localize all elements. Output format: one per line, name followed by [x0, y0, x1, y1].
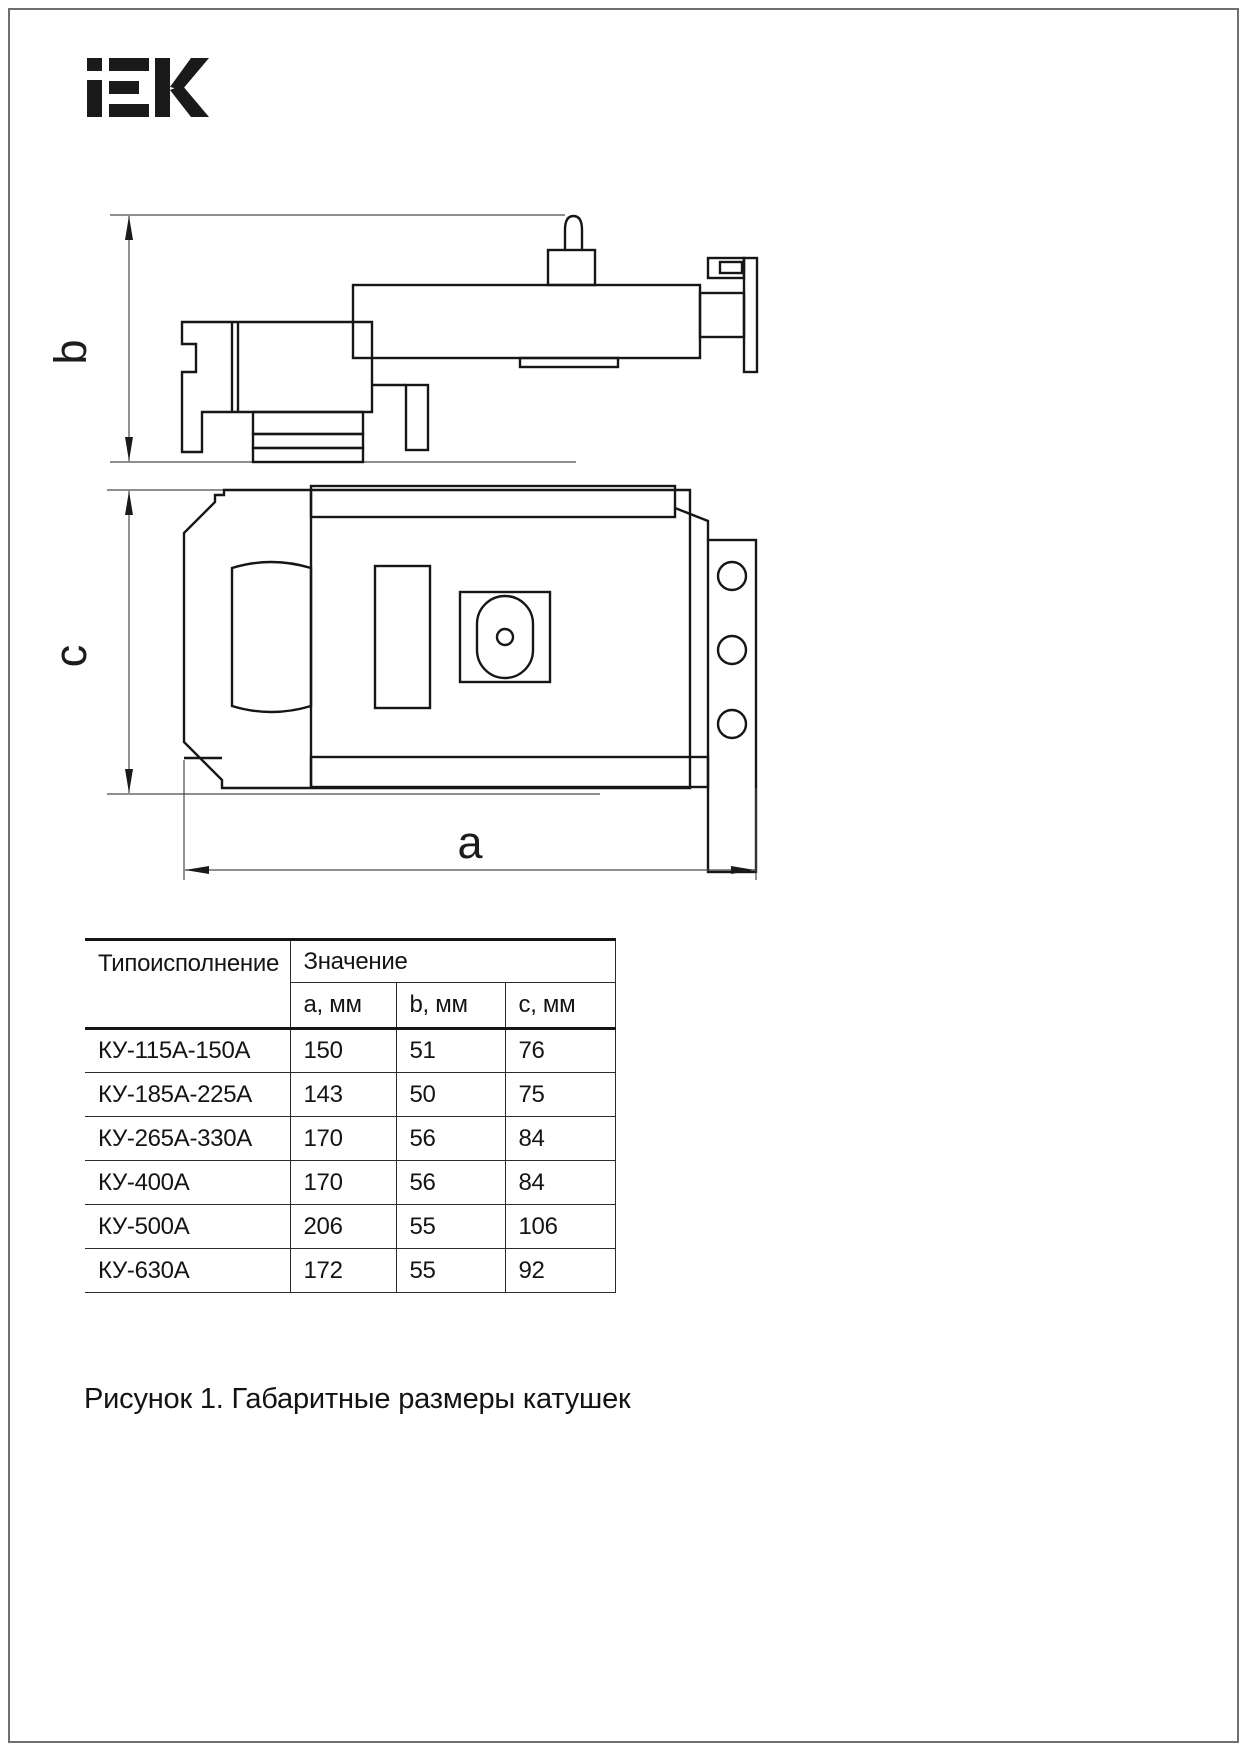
- pin: [565, 216, 582, 250]
- table-row: КУ-185А-225А 143 50 75: [85, 1073, 615, 1117]
- terminal-hole: [718, 562, 746, 590]
- dim-label-a: a: [457, 817, 483, 868]
- core-plate: [253, 412, 363, 434]
- arrow-up-icon: [125, 491, 133, 515]
- cell-b: 56: [396, 1117, 505, 1161]
- rail-joint: [675, 508, 708, 540]
- dim-label-c: c: [45, 645, 96, 668]
- table-row: КУ-115А-150А 150 51 76: [85, 1029, 615, 1073]
- cell-a: 206: [290, 1205, 396, 1249]
- cell-c: 76: [505, 1029, 615, 1073]
- table-row: КУ-500А 206 55 106: [85, 1205, 615, 1249]
- pin-base: [548, 250, 595, 285]
- key-square: [460, 592, 550, 682]
- table-row: КУ-400А 170 56 84: [85, 1161, 615, 1205]
- dimension-drawings: b c: [0, 0, 1247, 1751]
- subheader-b: b, мм: [396, 983, 505, 1029]
- side-body: [353, 285, 700, 358]
- key-hole: [497, 629, 513, 645]
- header-value: Значение: [290, 940, 615, 983]
- header-type: Типоисполнение: [85, 940, 290, 1029]
- bottom-rail: [311, 757, 708, 787]
- arrow-down-icon: [125, 437, 133, 461]
- table-row: КУ-630А 172 55 92: [85, 1249, 615, 1293]
- dimensions-table-body: КУ-115А-150А 150 51 76 КУ-185А-225А 143 …: [85, 1029, 615, 1293]
- bracket-neck: [700, 293, 744, 337]
- cell-a: 150: [290, 1029, 396, 1073]
- side-view-drawing: b: [45, 215, 757, 462]
- core-plate: [253, 448, 363, 462]
- bracket-hole: [720, 262, 742, 273]
- key-capsule: [477, 596, 533, 678]
- subheader-a: a, мм: [290, 983, 396, 1029]
- dimensions-table: Типоисполнение Значение a, мм b, мм c, м…: [85, 938, 616, 1293]
- cell-a: 170: [290, 1117, 396, 1161]
- table-row: КУ-265А-330А 170 56 84: [85, 1117, 615, 1161]
- terminal-hole: [718, 636, 746, 664]
- coil-barrel: [232, 562, 311, 712]
- figure-caption: Рисунок 1. Габаритные размеры катушек: [84, 1383, 631, 1416]
- cell-type: КУ-630А: [85, 1249, 290, 1293]
- cell-b: 51: [396, 1029, 505, 1073]
- subheader-c: c, мм: [505, 983, 615, 1029]
- slot: [375, 566, 430, 708]
- cell-c: 106: [505, 1205, 615, 1249]
- top-view-drawing: c a: [45, 486, 756, 880]
- terminal-hole: [718, 710, 746, 738]
- cell-a: 170: [290, 1161, 396, 1205]
- cell-type: КУ-500А: [85, 1205, 290, 1249]
- cell-b: 50: [396, 1073, 505, 1117]
- cell-type: КУ-115А-150А: [85, 1029, 290, 1073]
- yoke-block: [182, 322, 372, 452]
- cell-type: КУ-265А-330А: [85, 1117, 290, 1161]
- cell-a: 143: [290, 1073, 396, 1117]
- arrow-left-icon: [185, 866, 209, 874]
- cell-c: 84: [505, 1161, 615, 1205]
- cell-type: КУ-400А: [85, 1161, 290, 1205]
- arrow-down-icon: [125, 769, 133, 793]
- side-body-lip: [520, 358, 618, 367]
- cell-c: 75: [505, 1073, 615, 1117]
- cell-b: 55: [396, 1205, 505, 1249]
- cell-type: КУ-185А-225А: [85, 1073, 290, 1117]
- dim-label-b: b: [45, 339, 96, 364]
- top-body-outline: [184, 490, 690, 788]
- cell-a: 172: [290, 1249, 396, 1293]
- page: { "brand": { "logo": "IEK" }, "drawing":…: [0, 0, 1247, 1751]
- cell-c: 84: [505, 1117, 615, 1161]
- bracket-plate: [744, 258, 757, 372]
- arrow-up-icon: [125, 216, 133, 240]
- right-foot: [406, 385, 428, 450]
- cell-b: 56: [396, 1161, 505, 1205]
- core-plate: [253, 434, 363, 448]
- cell-c: 92: [505, 1249, 615, 1293]
- cell-b: 55: [396, 1249, 505, 1293]
- dimensions-table-header: Типоисполнение Значение a, мм b, мм c, м…: [85, 940, 615, 1029]
